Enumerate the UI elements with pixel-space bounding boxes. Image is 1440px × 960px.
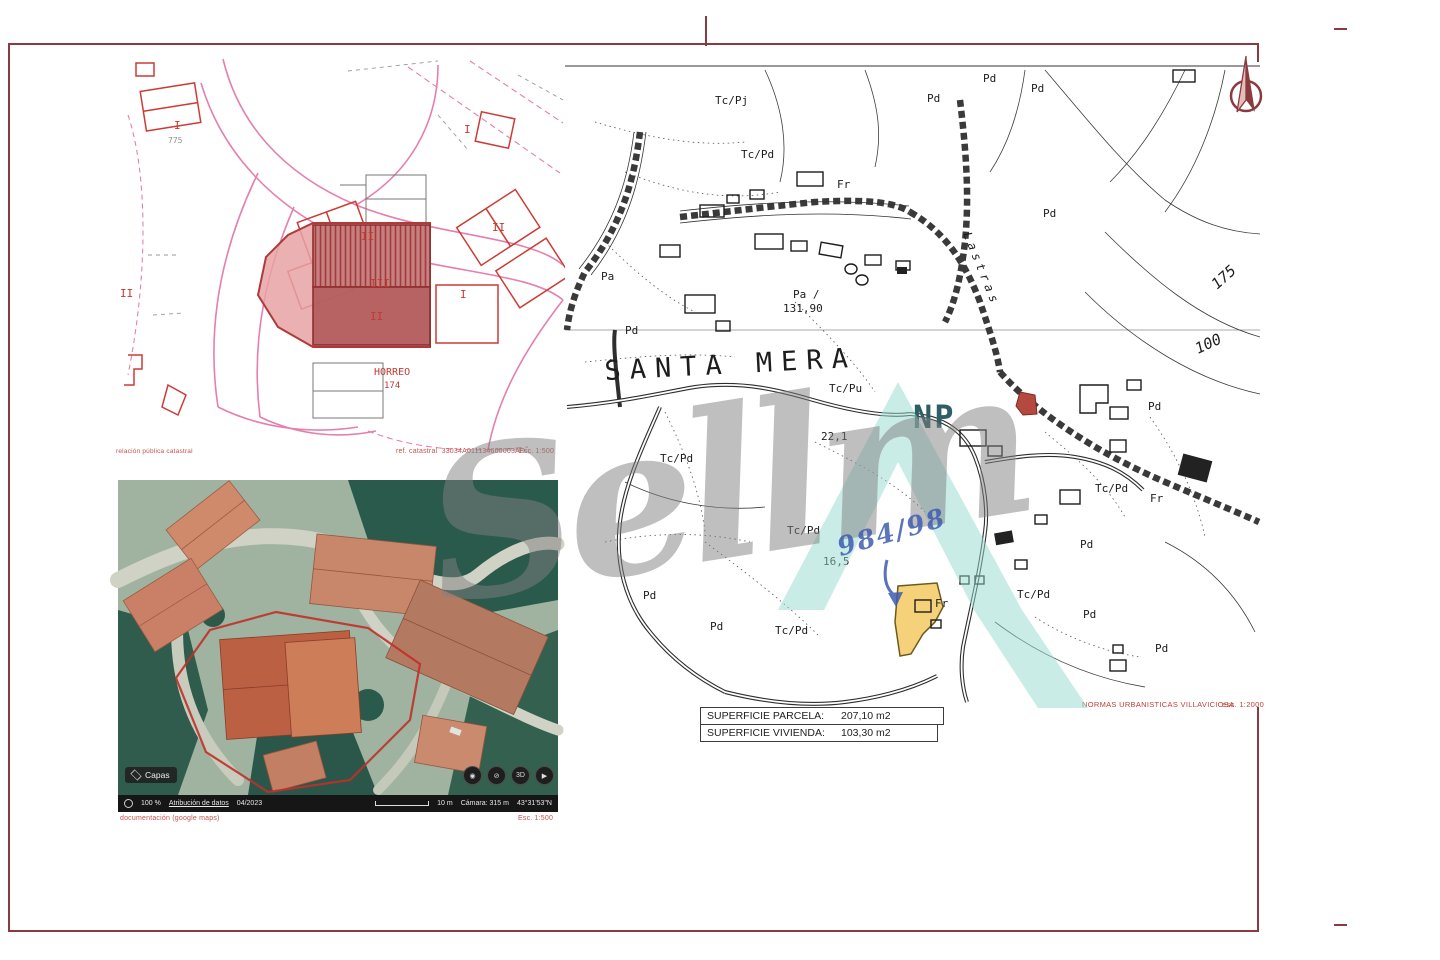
map-label: Pd [1031,82,1044,95]
attribution-link[interactable]: Atribución de datos [169,800,229,807]
highlighted-parcel [258,223,430,347]
map-label: Tc/Pd [660,452,693,465]
map-label: III [370,277,390,290]
3d-button[interactable]: 3D [511,766,530,785]
map-label: Tc/Pd [1095,482,1128,495]
parcel-surface-label: SUPERFICIE PARCELA: [707,710,825,722]
navigation-button[interactable]: ▶ [535,766,554,785]
layers-icon [130,769,141,780]
compass-button[interactable]: ⊘ [487,766,506,785]
map-label: Fr [837,178,851,191]
map-label: Pd [1080,538,1093,551]
table-row: SUPERFICIE VIVIENDA: 103,30 m2 [700,724,938,742]
map-label: Tc/Pd [787,524,820,537]
camera-altitude: Cámara: 315 m [461,800,509,807]
map-label: I [460,288,467,301]
north-arrow-icon [1218,50,1274,126]
aerial-photo-panel: Capas ◉ ⊘ 3D ▶ 100 % Atribución de datos… [118,480,558,812]
map-label: 22,1 [821,430,848,443]
scale-bar [375,801,429,806]
map-label: I [464,123,471,136]
scale-bar-label: 10 m [437,800,453,807]
map-label: II [492,221,505,234]
map-label: Pd [1083,608,1096,621]
map-label: Pd [625,324,638,337]
map-label: Fr [1150,492,1164,505]
map-label: 775 [168,136,183,145]
pegman-button[interactable]: ◉ [463,766,482,785]
map-label: Tc/Pj [715,94,748,107]
navigation-icon: ▶ [542,772,547,780]
zoom-icon [124,799,133,808]
map-label: Tc/Pd [775,624,808,637]
ref-label: ref. catastral [396,448,437,455]
table-row: SUPERFICIE PARCELA: 207,10 m2 [700,707,944,725]
map-label: II [361,230,374,243]
zoom-level: 100 % [141,800,161,807]
map-label: Pd [710,620,723,633]
pegman-icon: ◉ [469,772,475,780]
map-label: 174 [384,381,400,391]
aerial-caption-left: documentación (google maps) [120,815,220,822]
cadastral-scale: Esc. 1:500 [519,448,554,455]
map-label: NP [913,398,956,436]
map-label: Tc/Pu [829,382,862,395]
layers-button[interactable]: Capas [125,767,177,783]
map-label: II [370,310,383,323]
map-label: II [120,287,133,300]
status-bar: 100 % Atribución de datos 04/2023 10 m C… [118,795,558,812]
map-label: Tc/Pd [1017,588,1050,601]
map-label: Pd [983,72,996,85]
cadastral-ref: ref. catastral 33034A011134600003AD [396,448,525,455]
map-label: Pa / [793,288,820,301]
registration-mark-top [705,16,707,46]
parcel-surface-value: 207,10 m2 [825,710,937,722]
surface-table: SUPERFICIE PARCELA: 207,10 m2 SUPERFICIE… [700,707,944,742]
map-label: Pa [601,270,614,283]
registration-mark-right-bottom [1334,924,1347,926]
map-label: Pd [643,589,656,602]
layers-button-label: Capas [145,770,170,780]
imagery-date: 04/2023 [237,800,262,807]
map-label: HORREO [374,367,410,378]
cadastral-map: I775IIIIIIIIIIIIIHORREO174 [108,55,563,455]
satellite-image [118,480,558,795]
coordinates: 43°31'53"N [517,800,552,807]
map-controls: ◉ ⊘ 3D ▶ [463,766,554,785]
map-label: Pd [1155,642,1168,655]
aerial-caption-scale: Esc. 1:500 [518,815,553,822]
map-label: 131,90 [783,302,823,315]
topographic-map: PdPdPdTc/PjTc/PdFrPdPa /131,90PaPdSANTA … [565,62,1260,707]
map-label: Tc/Pd [741,148,774,161]
dwelling-surface-value: 103,30 m2 [825,727,931,739]
registration-mark-right-top [1334,28,1347,30]
ref-value: 33034A011134600003AD [442,448,526,455]
map-label: I [174,119,181,132]
topo-scale: esc. 1:2000 [1222,700,1264,709]
compass-icon: ⊘ [494,772,500,780]
3d-icon: 3D [516,772,525,779]
map-label: Pd [927,92,940,105]
topo-caption: NORMAS URBANISTICAS VILLAVICIOSA [1082,700,1234,709]
map-label: Fr [935,597,949,610]
map-label: 16,5 [823,555,850,568]
cadastral-caption-left: relación pública catastral [116,448,193,455]
map-label: Pd [1043,207,1056,220]
dwelling-surface-label: SUPERFICIE VIVIENDA: [707,727,825,739]
map-label: Pd [1148,400,1161,413]
scanned-property-sheet: I775IIIIIIIIIIIIIHORREO174 relación públ… [0,0,1440,960]
